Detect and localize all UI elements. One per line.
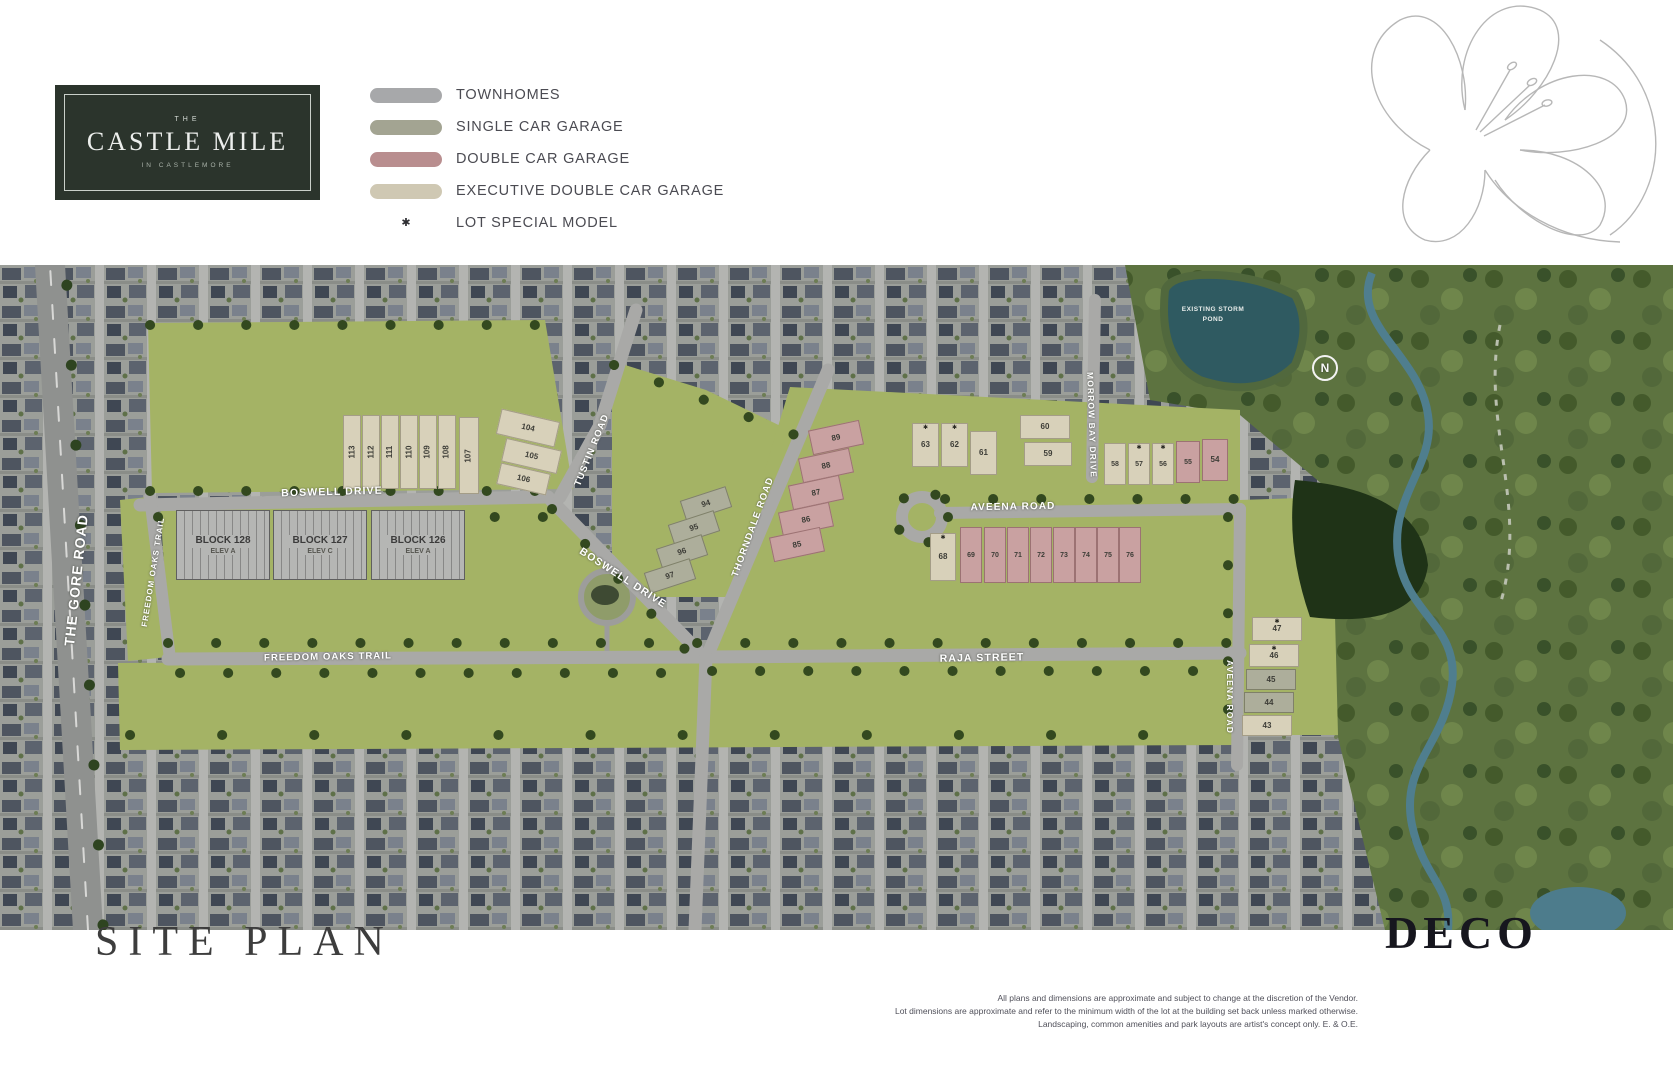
legend-swatch-townhomes [370,88,442,103]
road-label-aveena-road: AVEENA ROAD [970,501,1055,513]
road-label-boswell-drive: BOSWELL DRIVE [281,485,383,500]
disclaimer: All plans and dimensions are approximate… [895,992,1358,1030]
legend-label: EXECUTIVE DOUBLE CAR GARAGE [456,183,724,199]
disclaimer-line: All plans and dimensions are approximate… [895,992,1358,1005]
logo-the: THE [175,116,201,123]
road-label-freedom-oaks-trail: FREEDOM OAKS TRAIL [140,517,166,628]
north-compass-icon: N [1312,355,1338,381]
road-label-raja-street: RAJA STREET [940,651,1025,664]
storm-pond-label: EXISTING STORM POND [1180,305,1246,326]
site-plan-page: THE CASTLE MILE IN CASTLEMORE TOWNHOMESS… [0,0,1673,1080]
castle-mile-logo: THE CASTLE MILE IN CASTLEMORE [55,85,320,200]
legend-label: LOT SPECIAL MODEL [456,215,618,231]
road-label-the-gore-road: THE GORE ROAD [61,513,91,646]
legend-label: DOUBLE CAR GARAGE [456,151,630,167]
legend-item-single-car-garage: SINGLE CAR GARAGE [370,111,724,143]
header: THE CASTLE MILE IN CASTLEMORE TOWNHOMESS… [0,0,1673,265]
deco-logo: DECO [1385,906,1538,959]
flower-line-art [1280,0,1673,250]
legend-item-executive-double-car-garage: EXECUTIVE DOUBLE CAR GARAGE [370,175,724,207]
disclaimer-line: Landscaping, common amenities and park l… [895,1018,1358,1031]
road-label-tustin-road: TUSTIN ROAD [572,412,611,488]
legend-label: TOWNHOMES [456,87,560,103]
site-plan-map: 1131121111101091081071041051069495969789… [0,265,1673,930]
legend-item-townhomes: TOWNHOMES [370,79,724,111]
legend-item-double-car-garage: DOUBLE CAR GARAGE [370,143,724,175]
logo-in-castlemore: IN CASTLEMORE [141,162,233,169]
footer: SITE PLAN All plans and dimensions are a… [0,930,1673,1080]
lot-special-model-star-icon: ✱ [370,216,442,231]
legend: TOWNHOMESSINGLE CAR GARAGEDOUBLE CAR GAR… [370,79,724,239]
road-label-boswell-drive: BOSWELL DRIVE [577,545,669,610]
page-title: SITE PLAN [95,918,394,966]
legend-label: SINGLE CAR GARAGE [456,119,624,135]
logo-castle-mile: CASTLE MILE [87,127,288,157]
road-labels-layer: THE GORE ROADFREEDOM OAKS TRAILBOSWELL D… [0,265,1673,930]
road-label-freedom-oaks-trail: FREEDOM OAKS TRAIL [264,650,392,663]
legend-swatch-single-car-garage [370,120,442,135]
legend-swatch-double-car-garage [370,152,442,167]
disclaimer-line: Lot dimensions are approximate and refer… [895,1005,1358,1018]
road-label-aveena-road: AVEENA ROAD [1225,660,1235,734]
legend-item-lot-special-model: ✱LOT SPECIAL MODEL [370,207,724,239]
legend-swatch-executive-double-car-garage [370,184,442,199]
road-label-thorndale-road: THORNDALE ROAD [730,475,776,578]
road-label-morrow-bay-drive: MORROW BAY DRIVE [1085,372,1099,478]
